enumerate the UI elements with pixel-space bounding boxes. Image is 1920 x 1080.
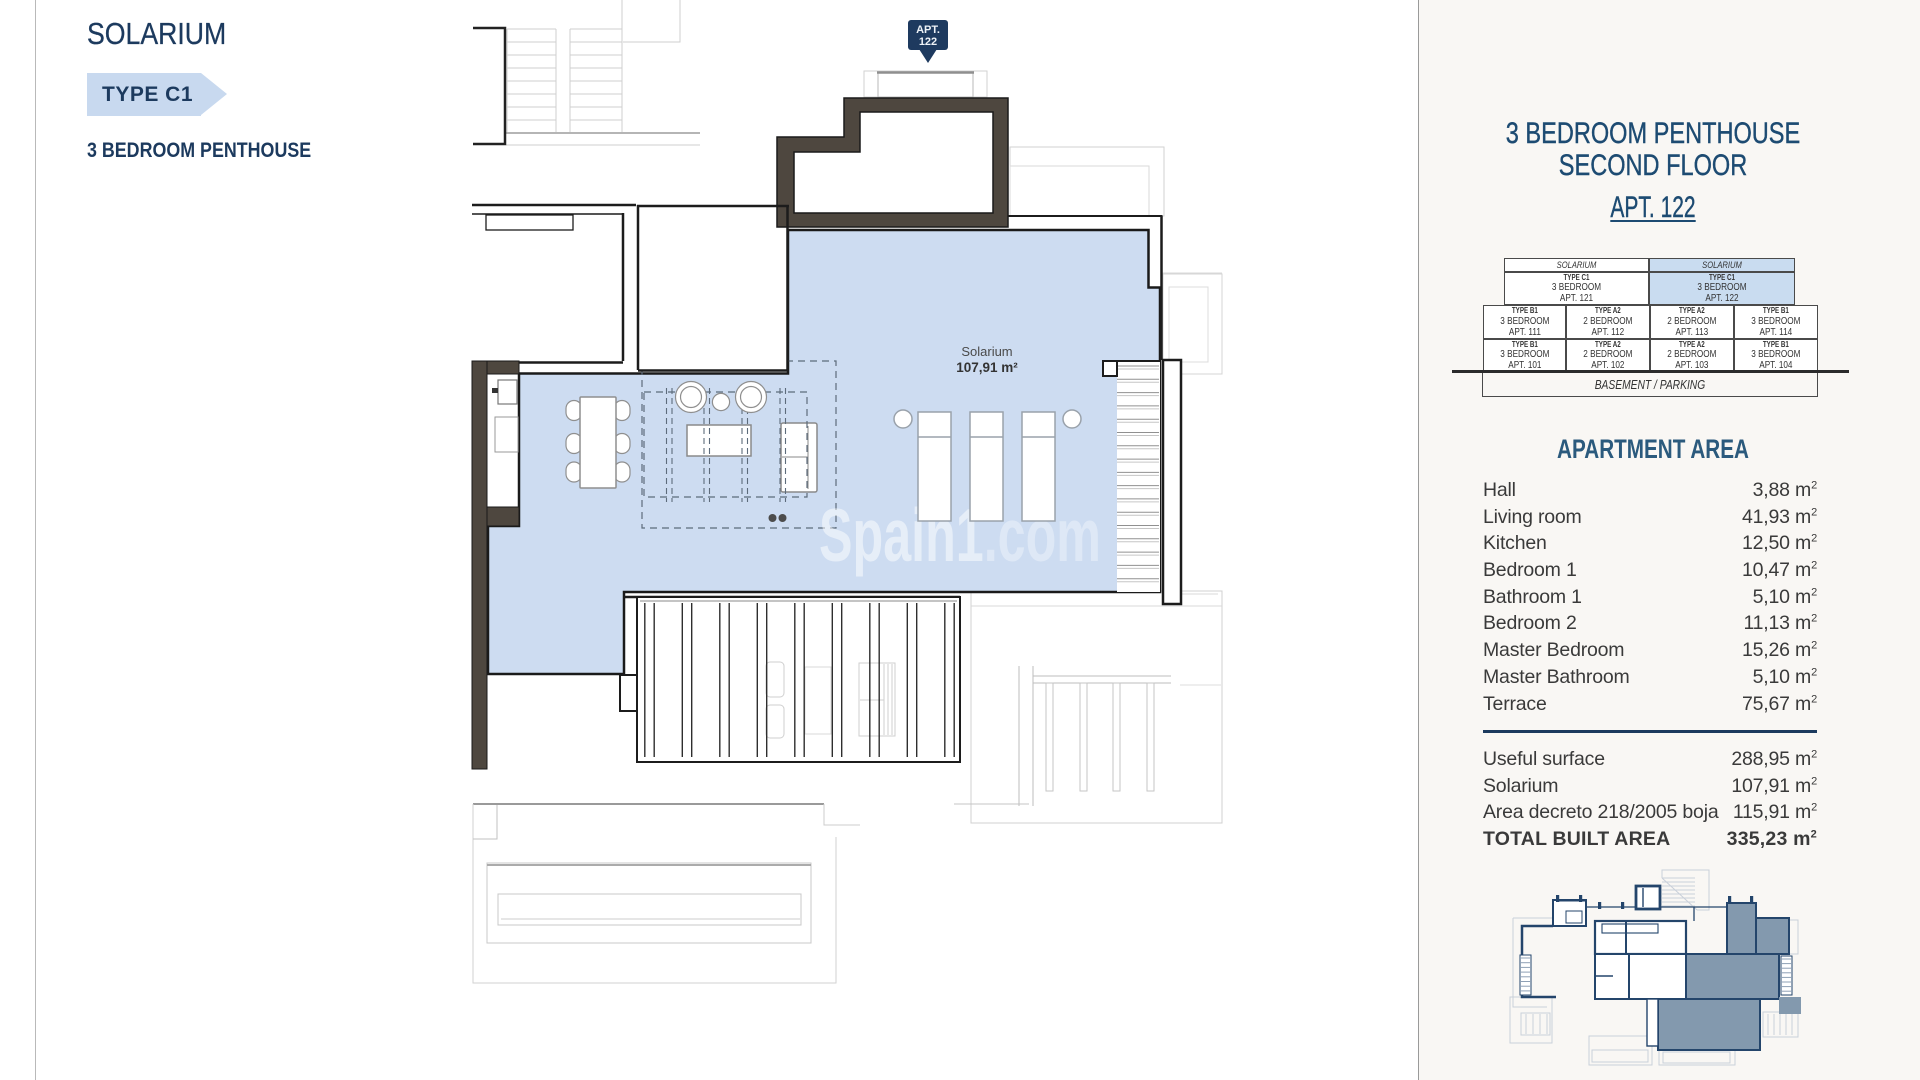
svg-text:Solarium: Solarium [961,344,1012,359]
svg-text:122: 122 [919,36,937,48]
svg-text:Spain1.com: Spain1.com [819,493,1101,577]
svg-text:107,91 m²: 107,91 m² [956,360,1018,375]
svg-text:APT.: APT. [916,24,940,36]
